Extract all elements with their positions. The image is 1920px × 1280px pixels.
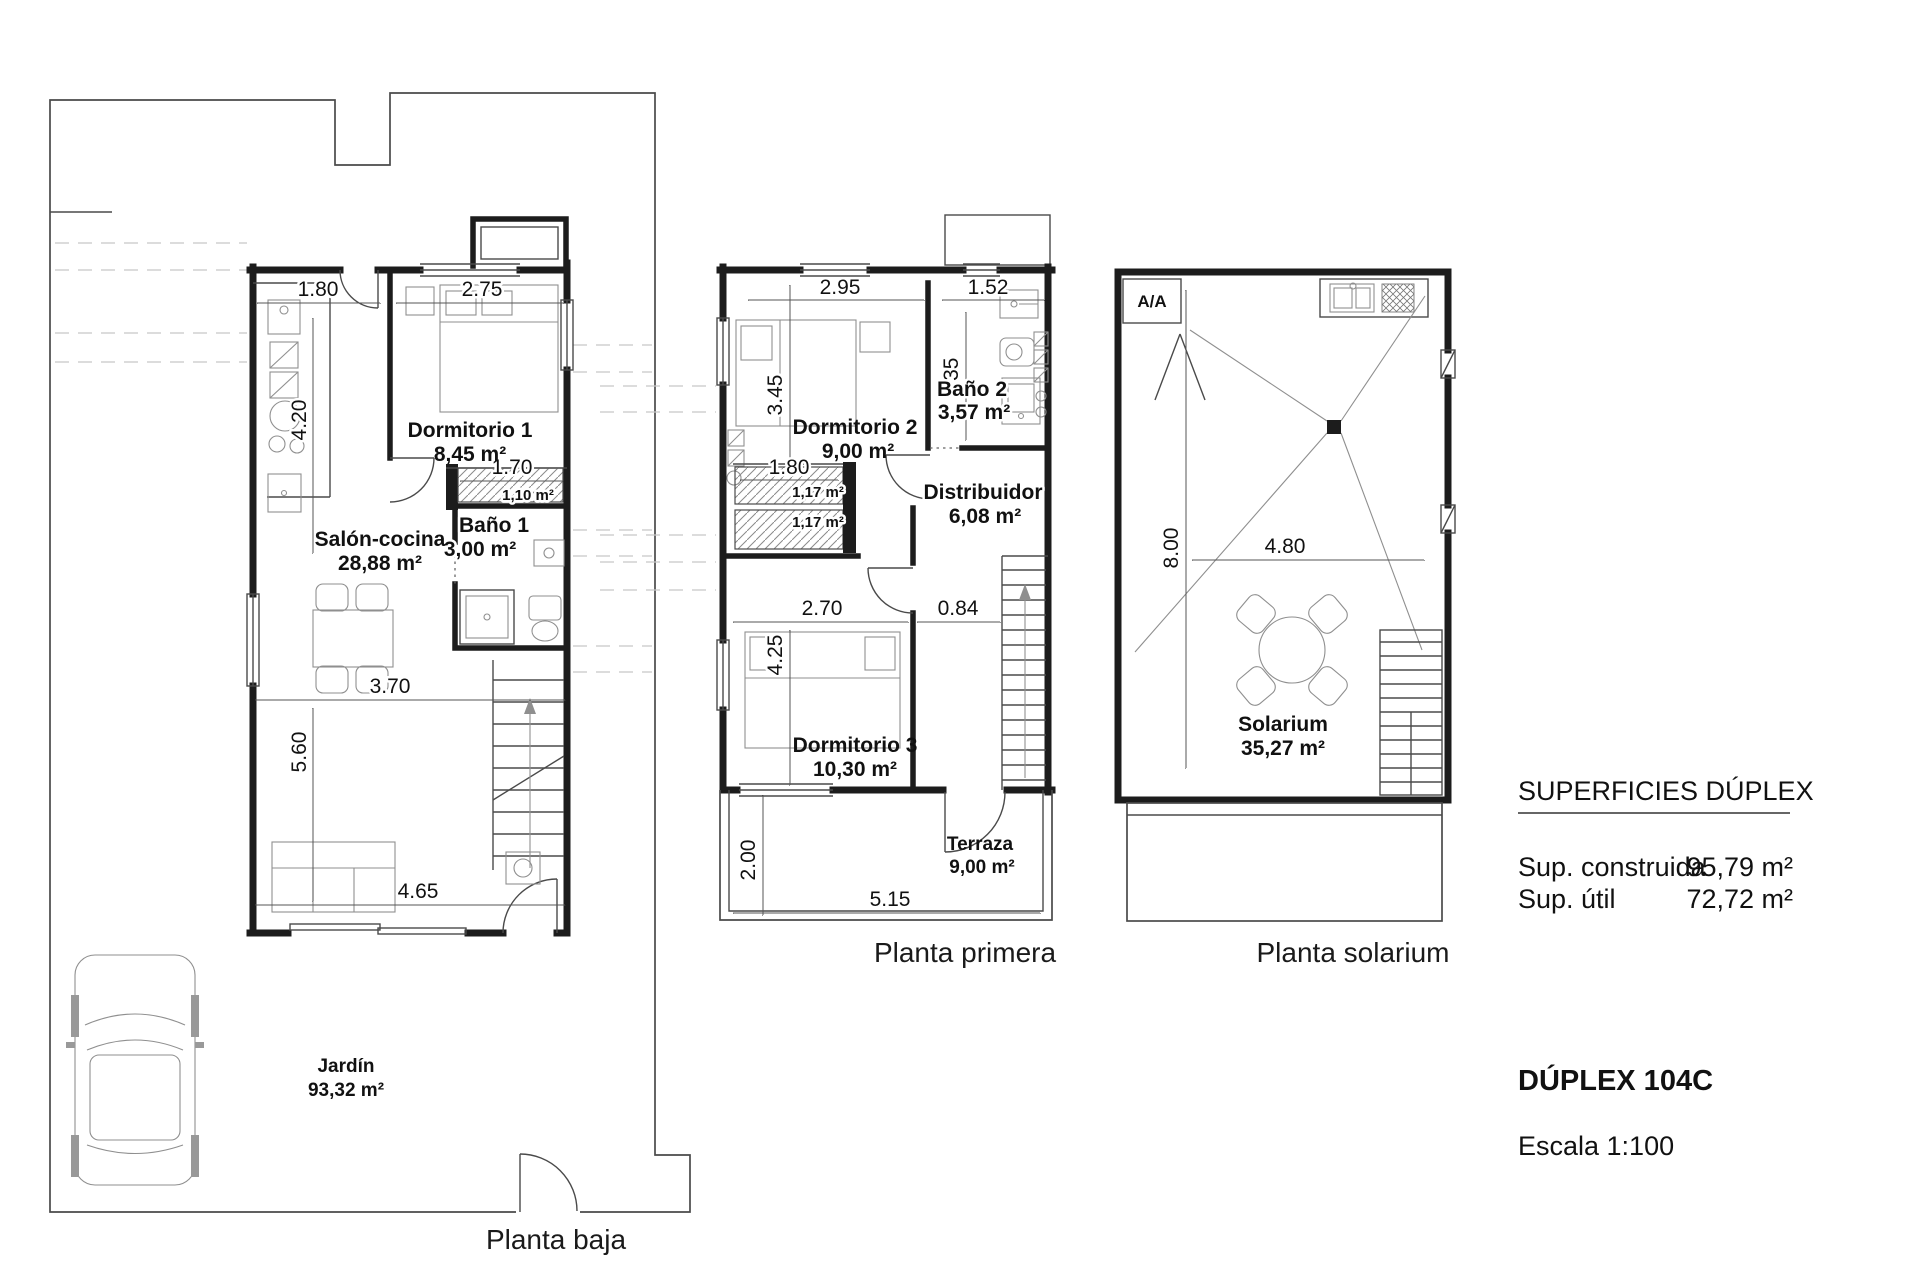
room-label-dormitorio2: Dormitorio 2	[793, 416, 918, 439]
armario1-area-label: 1,17 m²	[792, 484, 844, 501]
dim-label: 1.52	[968, 276, 1009, 299]
baja-room-labels: Dormitorio 1 8,45 m² Baño 1 3,00 m² Saló…	[308, 419, 627, 1255]
armario-area-label: 1,10 m²	[502, 487, 554, 504]
duplex-title: DÚPLEX 104C	[1518, 1063, 1713, 1097]
util-value: 72,72 m²	[1686, 884, 1793, 914]
bed-dorm2-icon	[736, 320, 890, 426]
dim-label: 2.75	[462, 278, 503, 301]
planta-baja-plan: 1.80 2.75 4.20 1.70 3.70 5.60 4.65 1,10 …	[50, 93, 690, 1255]
room-label-terraza: Terraza	[947, 834, 1014, 855]
round-table-icon	[1233, 591, 1350, 708]
roof-outline	[945, 215, 1050, 265]
dim-label: 0.84	[938, 597, 979, 620]
room-label-distribuidor: Distribuidor	[924, 481, 1043, 504]
planta-solarium-plan: A/A 8.00 4.8	[1118, 272, 1455, 968]
dim-label: 4.20	[288, 400, 311, 441]
solarium-lower-roof	[1127, 803, 1442, 921]
room-label-jardin: Jardín	[317, 1056, 374, 1077]
room-label-dormitorio3: Dormitorio 3	[793, 734, 918, 757]
solarium-stairs	[1380, 630, 1442, 795]
dim-label: 2.95	[820, 276, 861, 299]
area-label-bano1: 3,00 m²	[444, 538, 516, 561]
plan-title-primera: Planta primera	[874, 937, 1057, 968]
baja-outer-walls	[250, 219, 567, 933]
dim-label: 5.15	[870, 888, 911, 911]
baja-dimensions: 1.80 2.75 4.20 1.70 3.70 5.60 4.65 1,10 …	[255, 278, 565, 905]
escala-label: Escala 1:100	[1518, 1131, 1674, 1161]
room-label-dormitorio1: Dormitorio 1	[408, 419, 533, 442]
car-icon	[66, 955, 204, 1185]
area-label-bano2: 3,57 m²	[938, 401, 1010, 424]
room-label-bano1: Baño 1	[459, 514, 529, 537]
construida-label: Sup. construida	[1518, 852, 1707, 882]
superficies-title: SUPERFICIES DÚPLEX	[1518, 775, 1814, 806]
area-label-terraza: 9,00 m²	[949, 857, 1014, 878]
room-label-bano2: Baño 2	[937, 378, 1007, 401]
garden-boundary	[50, 93, 690, 1220]
area-label-salon: 28,88 m²	[338, 552, 422, 575]
legend-block: SUPERFICIES DÚPLEX Sup. construida 95,79…	[1518, 775, 1814, 1161]
dim-label: 1.80	[769, 456, 810, 479]
reference-dashed-lines	[55, 243, 652, 672]
solarium-dimensions: 8.00 4.80	[1160, 290, 1424, 768]
primera-stairs	[1002, 556, 1048, 790]
dim-label: 3.45	[764, 375, 787, 416]
room-label-solarium: Solarium	[1238, 713, 1328, 736]
util-label: Sup. útil	[1518, 884, 1616, 914]
area-label-dormitorio2: 9,00 m²	[822, 440, 894, 463]
area-label-dormitorio3: 10,30 m²	[813, 758, 897, 781]
dim-label: 4.65	[398, 880, 439, 903]
planta-primera-plan: 2.95 1.52 2.35 3.45 1.80 1,17 m² 1,17 m²…	[600, 215, 1056, 968]
solarium-labels: Solarium 35,27 m² Planta solarium	[1238, 713, 1449, 968]
dim-label: 4.80	[1265, 535, 1306, 558]
dim-label: 5.60	[288, 732, 311, 773]
roof-diagonals	[1135, 296, 1425, 652]
floor-plan-drawing: 1.80 2.75 4.20 1.70 3.70 5.60 4.65 1,10 …	[0, 0, 1920, 1280]
outdoor-kitchen	[1320, 279, 1428, 317]
floor-plan-page: { "page": { "background": "#ffffff", "wa…	[0, 0, 1920, 1280]
dim-label: 2.70	[802, 597, 843, 620]
area-label-solarium: 35,27 m²	[1241, 737, 1325, 760]
baja-stairs	[493, 660, 564, 870]
construida-value: 95,79 m²	[1686, 852, 1793, 882]
dim-label: 3.70	[370, 675, 411, 698]
area-label-dormitorio1: 8,45 m²	[434, 443, 506, 466]
bed-dorm1-icon	[406, 285, 558, 412]
area-label-distribuidor: 6,08 m²	[949, 505, 1021, 528]
dim-label: 1.80	[298, 278, 339, 301]
dim-label: 8.00	[1160, 528, 1183, 569]
ac-unit: A/A	[1123, 279, 1205, 400]
primera-dashed-lines	[600, 386, 716, 590]
room-label-salon: Salón-cocina	[315, 528, 446, 551]
kitchen-appliances	[253, 283, 330, 512]
plan-title-solarium: Planta solarium	[1257, 937, 1450, 968]
plan-title-baja: Planta baja	[486, 1224, 627, 1255]
dim-label: 4.25	[764, 635, 787, 676]
ac-unit-label: A/A	[1137, 292, 1166, 311]
dim-label: 2.00	[737, 840, 760, 881]
armario2-area-label: 1,17 m²	[792, 514, 844, 531]
area-label-jardin: 93,32 m²	[308, 1080, 384, 1101]
